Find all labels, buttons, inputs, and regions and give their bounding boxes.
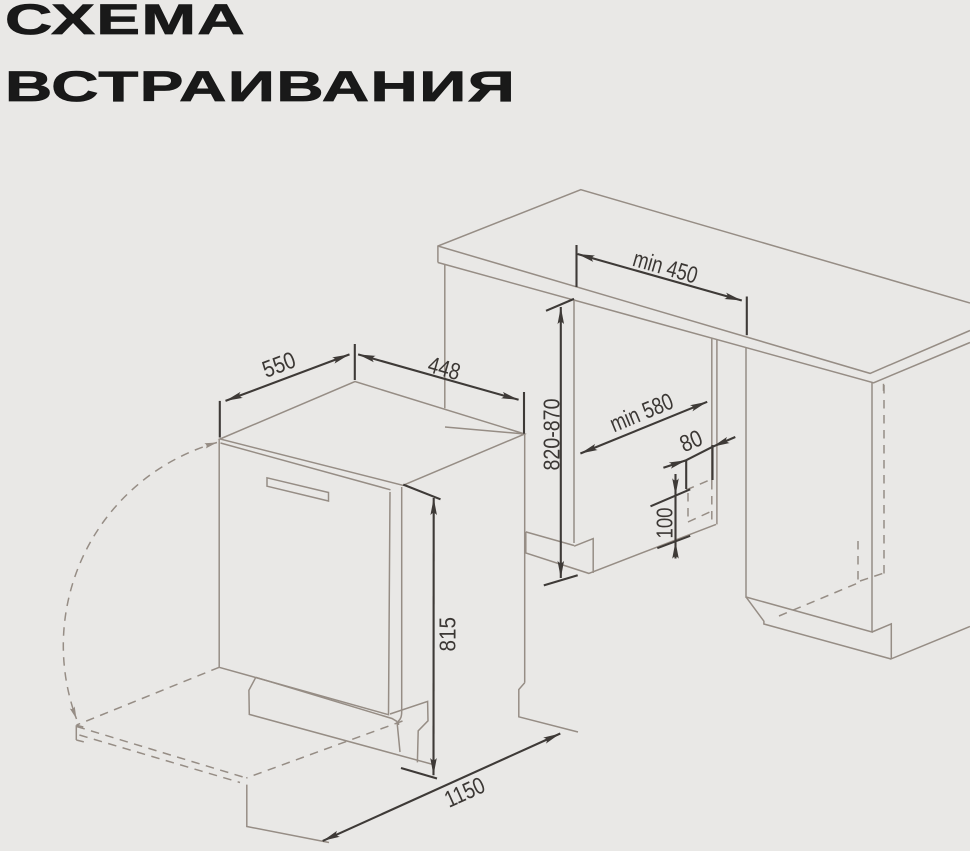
- svg-text:550: 550: [259, 347, 299, 383]
- svg-text:100: 100: [652, 508, 678, 539]
- svg-text:820-870: 820-870: [539, 399, 565, 471]
- svg-text:min 450: min 450: [630, 245, 701, 288]
- svg-text:1150: 1150: [440, 772, 489, 813]
- svg-text:min 580: min 580: [606, 388, 677, 437]
- svg-text:448: 448: [425, 351, 463, 385]
- svg-text:815: 815: [435, 617, 461, 652]
